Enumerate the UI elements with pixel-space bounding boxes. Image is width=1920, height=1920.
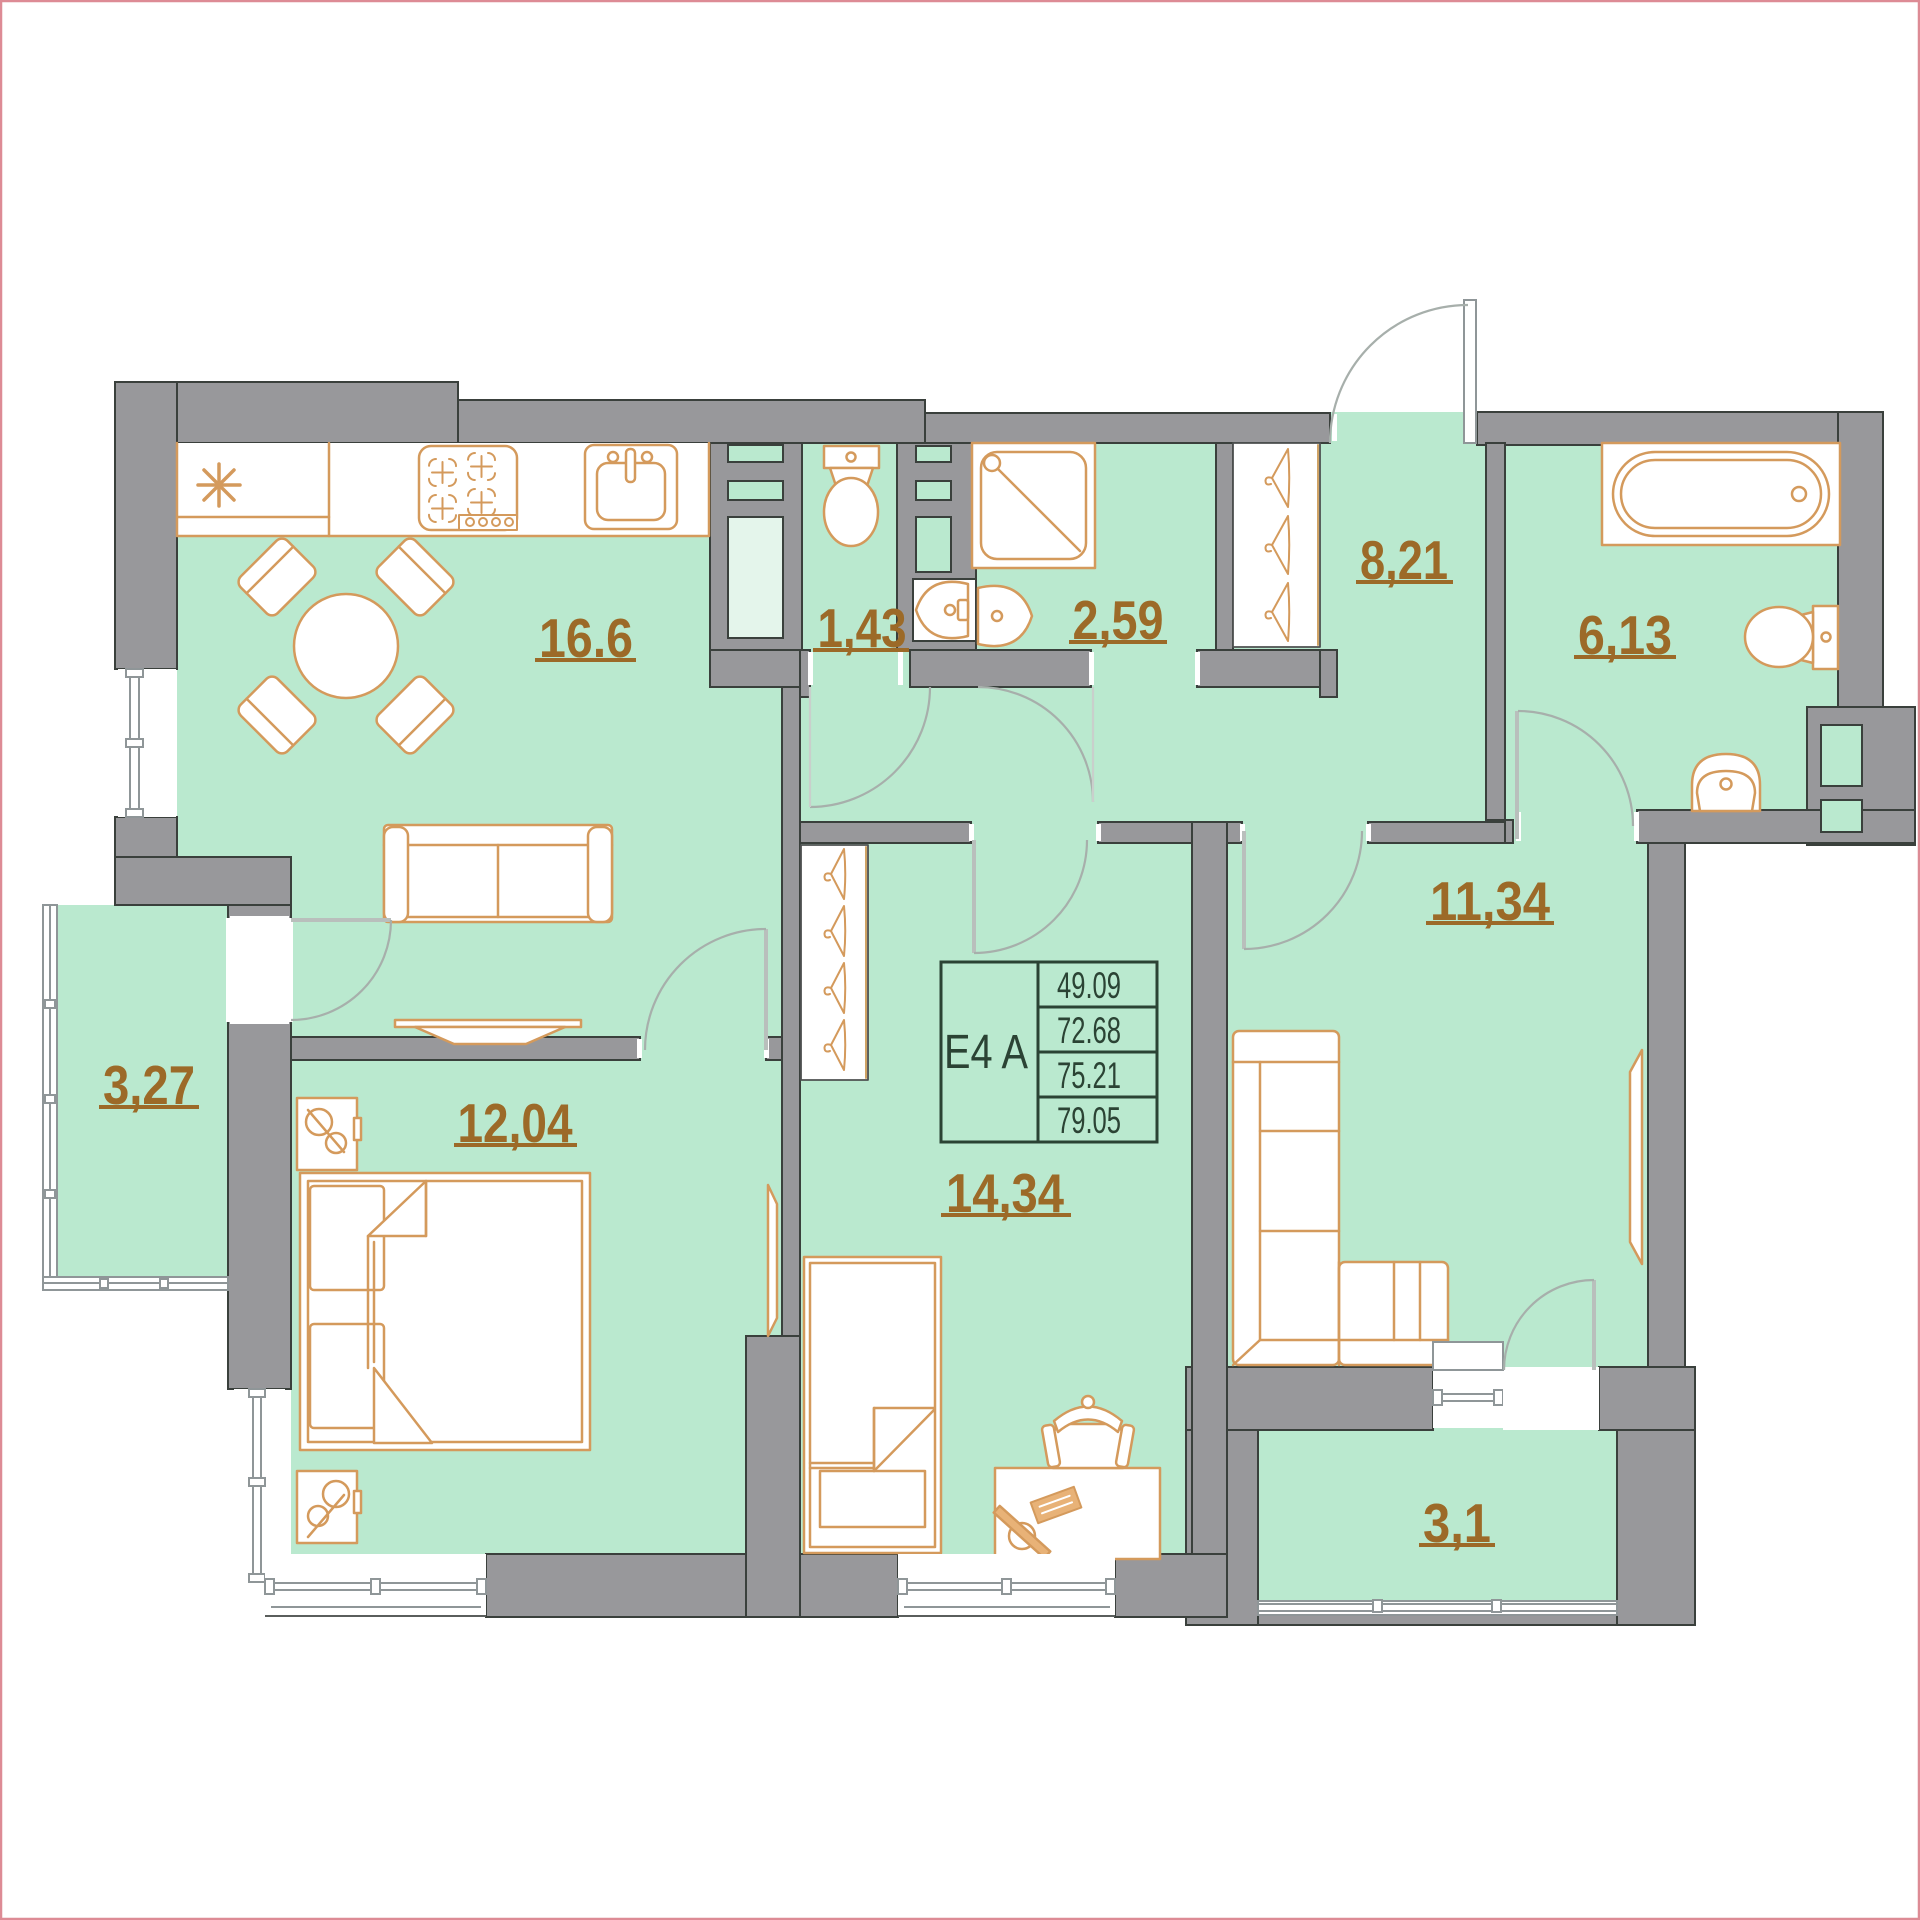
svg-text:75.21: 75.21 xyxy=(1057,1055,1121,1096)
svg-text:72.68: 72.68 xyxy=(1057,1010,1121,1051)
svg-text:49.09: 49.09 xyxy=(1057,965,1121,1006)
svg-text:E4 A: E4 A xyxy=(944,1026,1028,1079)
svg-text:79.05: 79.05 xyxy=(1057,1100,1121,1141)
